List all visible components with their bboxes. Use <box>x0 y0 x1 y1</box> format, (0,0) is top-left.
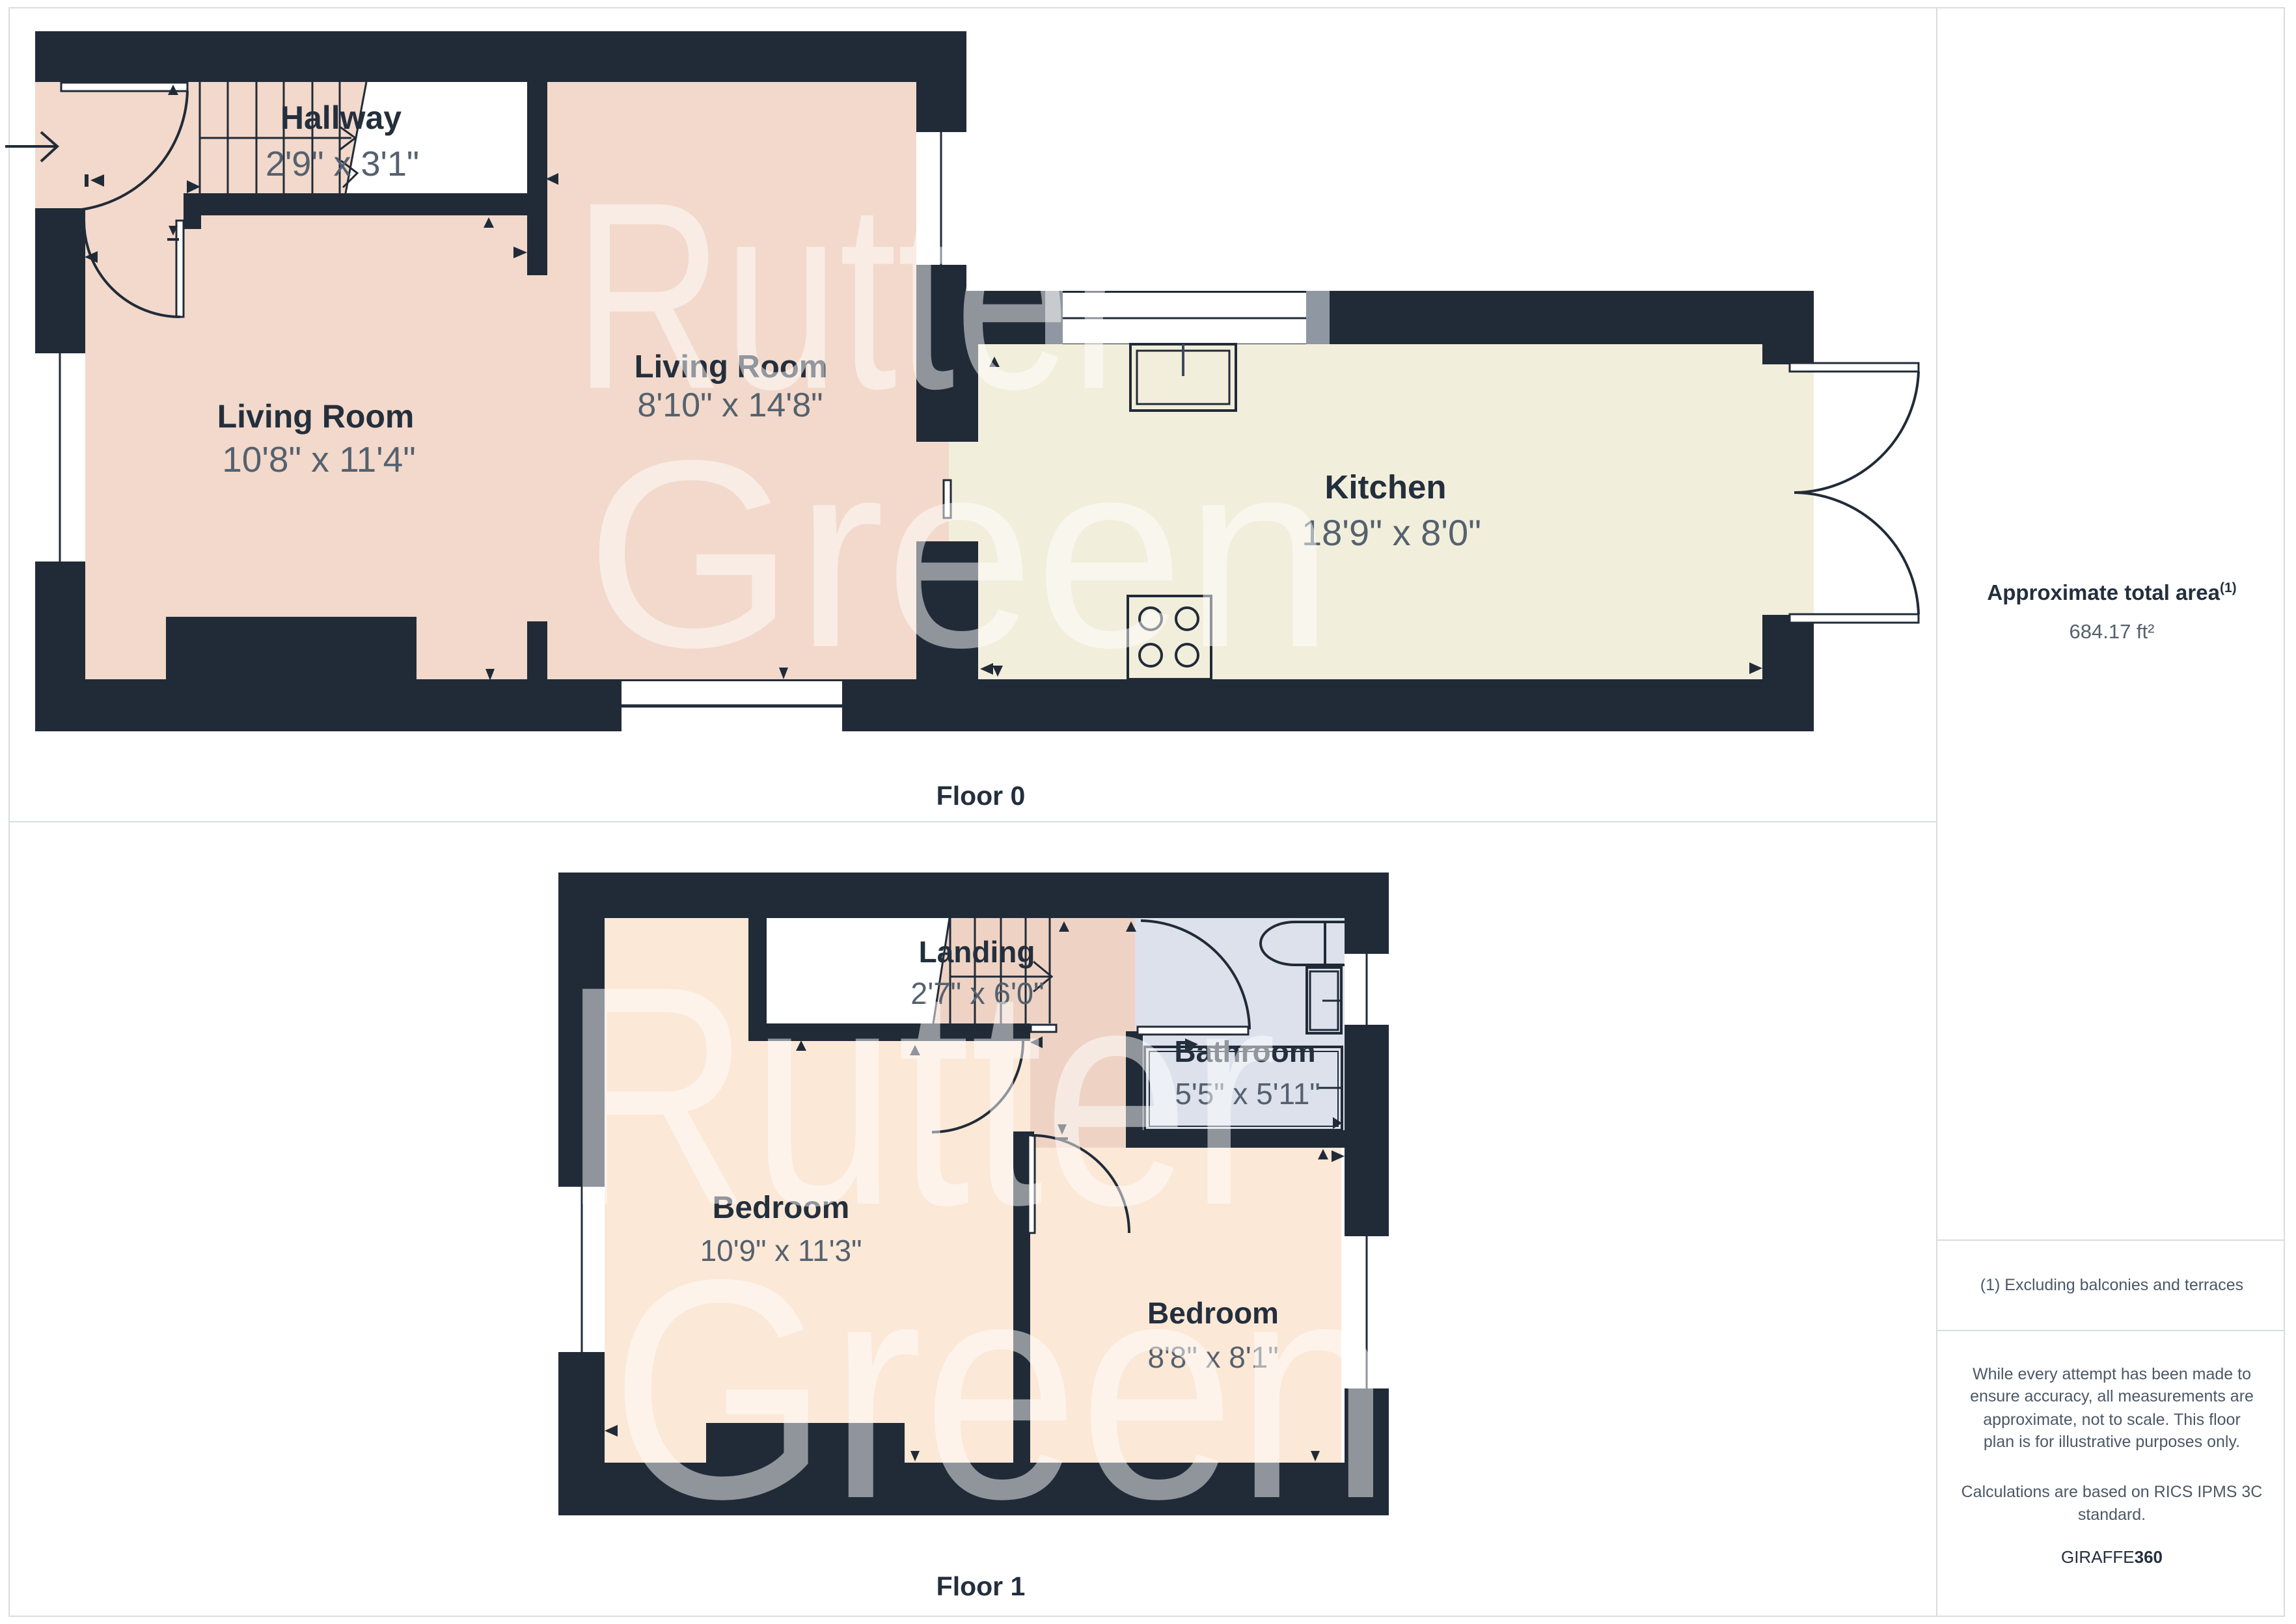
svg-text:Living Room: Living Room <box>217 398 415 435</box>
svg-text:684.17 ft²: 684.17 ft² <box>2070 620 2155 643</box>
svg-text:(1) Excluding balconies and te: (1) Excluding balconies and terraces <box>1980 1276 2243 1294</box>
svg-text:Floor 1: Floor 1 <box>936 1571 1026 1601</box>
svg-text:Approximate total area(1): Approximate total area(1) <box>1987 580 2236 604</box>
svg-text:2'9" x 3'1": 2'9" x 3'1" <box>266 144 419 183</box>
svg-text:standard.: standard. <box>2078 1506 2146 1524</box>
svg-text:Green: Green <box>610 1214 1391 1563</box>
svg-text:Hallway: Hallway <box>280 100 402 136</box>
svg-text:Kitchen: Kitchen <box>1324 468 1446 506</box>
svg-text:approximate, not to scale. Thi: approximate, not to scale. This floor <box>1983 1411 2241 1429</box>
svg-text:GIRAFFE360: GIRAFFE360 <box>2061 1547 2163 1567</box>
svg-text:10'8" x 11'4": 10'8" x 11'4" <box>222 439 416 480</box>
svg-text:Green: Green <box>586 405 1334 703</box>
svg-text:While every attempt has been m: While every attempt has been made to <box>1973 1365 2251 1383</box>
svg-text:Floor 0: Floor 0 <box>936 781 1026 811</box>
svg-text:Rutter: Rutter <box>573 146 1140 444</box>
svg-text:ensure accuracy, all measureme: ensure accuracy, all measurements are <box>1970 1387 2254 1405</box>
svg-text:Calculations are based on RICS: Calculations are based on RICS IPMS 3C <box>1961 1483 2263 1501</box>
svg-text:plan is for illustrative purpo: plan is for illustrative purposes only. <box>1984 1433 2240 1451</box>
